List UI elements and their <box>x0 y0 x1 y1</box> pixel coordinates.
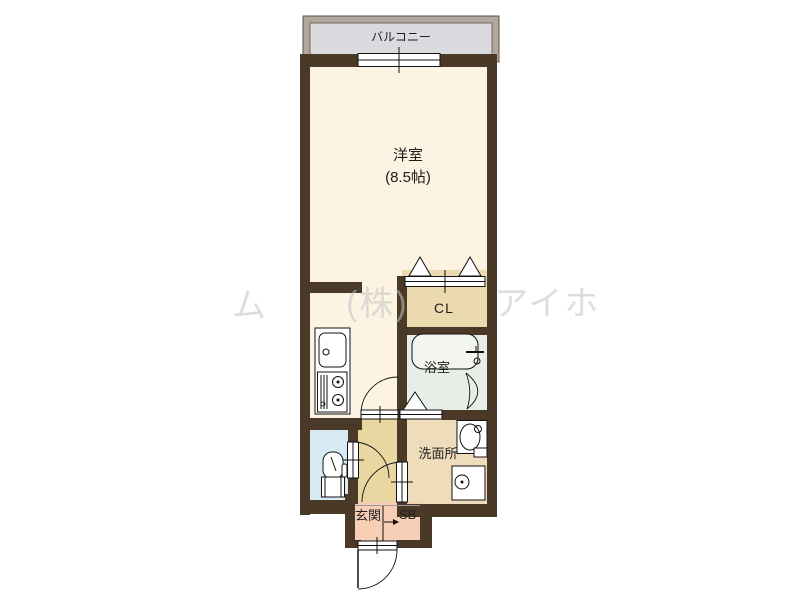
entrance-door-icon <box>358 537 397 589</box>
washing-machine-icon <box>452 466 485 500</box>
wall-left <box>300 54 310 515</box>
bathroom-label: 浴室 <box>407 361 467 375</box>
stove-icon <box>318 372 348 412</box>
closet-label: CL <box>414 301 474 316</box>
wall-bath-bottom <box>442 410 487 420</box>
wall-toilet-right-upper <box>348 428 358 442</box>
shoebox-label: SB <box>399 508 416 522</box>
wall-entrance-bottom-right <box>397 540 432 548</box>
main-room-size-label: (8.5帖) <box>348 170 468 187</box>
wall-entrance-left <box>345 494 355 548</box>
floorplan-canvas: バルコニー 洋室 (8.5帖) CL 浴室 洗面所 玄関 SB ム (株) アイ… <box>0 0 800 600</box>
balcony-label: バルコニー <box>331 31 471 44</box>
watermark-text-3: アイホ <box>494 276 600 325</box>
toilet-icon <box>322 452 348 497</box>
watermark-text-2: (株) <box>346 276 409 325</box>
main-room-label: 洋室 <box>348 148 468 165</box>
watermark-text-1: ム <box>232 278 268 327</box>
kitchen-sink-icon <box>319 333 346 367</box>
entrance-label: 玄関 <box>355 509 381 523</box>
washroom-label: 洗面所 <box>398 447 478 461</box>
hallway-floor <box>358 418 398 506</box>
